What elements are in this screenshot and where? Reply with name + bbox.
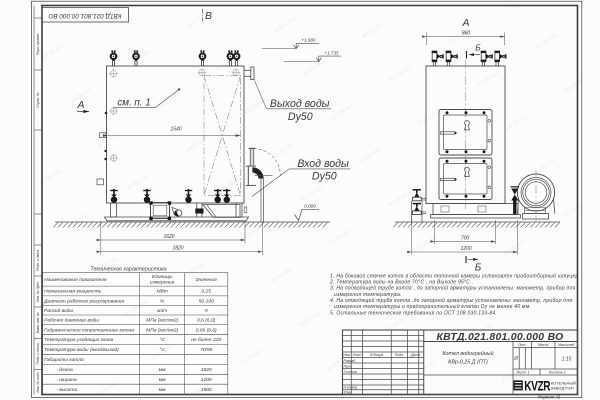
svg-text:1:15: 1:15 xyxy=(562,357,572,363)
svg-text:700: 700 xyxy=(461,236,470,242)
svg-text:Листов 2: Листов 2 xyxy=(548,371,567,375)
svg-text:4. На отводящей трубе котла ,: 4. На отводящей трубе котла ,до запорной… xyxy=(330,297,572,304)
svg-text:5. Остальные технические треб: 5. Остальные технические требования по О… xyxy=(330,310,497,316)
svg-text:Перв. примен.: Перв. примен. xyxy=(36,33,40,56)
svg-text:Значение: Значение xyxy=(195,277,217,283)
svg-text:Вход воды: Вход воды xyxy=(297,158,349,170)
svg-text:Пров.: Пров. xyxy=(344,364,353,368)
svg-text:см. п. 1: см. п. 1 xyxy=(117,97,150,108)
svg-text:А: А xyxy=(461,17,469,29)
svg-text:Выход воды: Выход воды xyxy=(270,98,330,110)
svg-text:измерения температуры и предох: измерения температуры и предохранительны… xyxy=(334,303,531,310)
svg-text:Расход воды: Расход воды xyxy=(44,308,73,314)
svg-text:9: 9 xyxy=(205,308,208,314)
svg-text:Гидравлическое сопротивление к: Гидравлическое сопротивление котла xyxy=(44,327,134,333)
svg-text:Б: Б xyxy=(475,43,481,53)
svg-text:не более 220: не более 220 xyxy=(191,337,221,343)
svg-text:Формат А3: Формат А3 xyxy=(538,394,561,399)
svg-text:Рабочее давление воды: Рабочее давление воды xyxy=(44,317,99,323)
svg-text:ЗАВОД РЭП: ЗАВОД РЭП xyxy=(551,386,574,391)
svg-text:1620: 1620 xyxy=(163,234,174,240)
svg-text:- высота: - высота xyxy=(56,388,77,393)
svg-text:МПа (кгс/см2): МПа (кгс/см2) xyxy=(146,317,178,323)
svg-text:Температура воды (вход/выход): Температура воды (вход/выход) xyxy=(44,347,119,353)
svg-text:0,25: 0,25 xyxy=(201,289,211,295)
svg-text:мм: мм xyxy=(159,388,166,393)
svg-text:А: А xyxy=(76,99,84,111)
svg-text:Dy50: Dy50 xyxy=(288,111,313,123)
svg-text:В: В xyxy=(205,10,212,22)
svg-text:- длина: - длина xyxy=(56,367,73,373)
svg-text:Габариты котла: Габариты котла xyxy=(44,357,84,363)
svg-text:Взам. инв. №: Взам. инв. № xyxy=(36,312,40,333)
svg-text:860: 860 xyxy=(462,31,471,37)
svg-text:Подп.: Подп. xyxy=(395,353,404,357)
svg-text:1540: 1540 xyxy=(170,127,181,133)
svg-text:КВТД.021.801.00.000 ВО: КВТД.021.801.00.000 ВО xyxy=(49,12,122,19)
svg-text:Подп. и дата: Подп. и дата xyxy=(36,250,40,271)
svg-text:Н.контр.: Н.контр. xyxy=(344,386,359,390)
svg-text:КВТД.021.801.00.000 ВО: КВТД.021.801.00.000 ВО xyxy=(436,332,563,343)
svg-text:°С: °С xyxy=(159,347,165,353)
svg-text:50-100: 50-100 xyxy=(199,298,215,304)
svg-text:Масса: Масса xyxy=(538,343,548,347)
svg-text:Номинальная мощность: Номинальная мощность xyxy=(44,289,102,295)
svg-text:°С: °С xyxy=(159,337,165,343)
svg-text:измерения: измерения xyxy=(150,281,175,286)
svg-text:КОТЕЛЬНЫЙ: КОТЕЛЬНЫЙ xyxy=(551,380,576,385)
svg-text:м3/ч: м3/ч xyxy=(157,308,167,314)
svg-text:Изм.: Изм. xyxy=(343,353,350,357)
svg-text:+1.900: +1.900 xyxy=(301,38,316,43)
svg-text:Инв. № подл.: Инв. № подл. xyxy=(36,371,40,392)
svg-text:Дата: Дата xyxy=(410,353,420,357)
svg-text:0,06 (0,6): 0,06 (0,6) xyxy=(196,327,217,333)
svg-text:Лист: Лист xyxy=(351,353,361,357)
svg-text:KVZR: KVZR xyxy=(524,378,551,394)
svg-text:1. На боковой стенке котла в: 1. На боковой стенке котла в области топ… xyxy=(330,272,578,279)
svg-text:Dy50: Dy50 xyxy=(312,170,337,182)
svg-text:1200: 1200 xyxy=(460,246,471,252)
svg-text:Наименование показателя: Наименование показателя xyxy=(44,277,107,283)
svg-text:Т.контр.: Т.контр. xyxy=(344,370,358,374)
svg-text:Единицы: Единицы xyxy=(152,274,173,280)
svg-text:Температура уходящих газов: Температура уходящих газов xyxy=(44,337,113,343)
svg-text:мм: мм xyxy=(159,368,166,373)
svg-text:Техническая характеристика: Техническая характеристика xyxy=(90,266,166,272)
svg-text:мм: мм xyxy=(159,378,166,383)
svg-text:1200: 1200 xyxy=(201,377,212,383)
svg-text:%: % xyxy=(160,298,165,304)
svg-text:Утв.: Утв. xyxy=(344,390,352,394)
svg-text:Лит.: Лит. xyxy=(517,343,526,347)
svg-text:Б: Б xyxy=(475,263,482,274)
svg-text:МВт: МВт xyxy=(156,289,167,295)
svg-text:Разраб.: Разраб. xyxy=(344,359,357,363)
svg-text:измерения температуры.: измерения температуры. xyxy=(334,292,402,298)
svg-text:КВр-0,25 Д (ПТ): КВр-0,25 Д (ПТ) xyxy=(448,360,488,366)
svg-text:0.000: 0.000 xyxy=(304,204,316,209)
svg-text:1900: 1900 xyxy=(201,387,212,393)
svg-text:Справ. №: Справ. № xyxy=(36,92,40,108)
svg-text:70/95: 70/95 xyxy=(200,347,213,353)
svg-text:Котел водогрейный: Котел водогрейный xyxy=(442,350,493,357)
svg-text:1820: 1820 xyxy=(172,246,183,252)
svg-text:Диапазон рабочего регулировани: Диапазон рабочего регулирования xyxy=(43,298,124,304)
svg-text:2. Температура воды на Входе: 2. Температура воды на Входе 70°С , на В… xyxy=(329,280,473,286)
svg-text:3. На подводящей трубе котла: 3. На подводящей трубе котла , до запорн… xyxy=(330,285,576,292)
svg-text:Подп. и дата: Подп. и дата xyxy=(36,343,40,364)
svg-text:МПа (кгс/см2): МПа (кгс/см2) xyxy=(146,327,178,333)
svg-text:Лист 1: Лист 1 xyxy=(516,371,530,375)
svg-text:1820: 1820 xyxy=(201,367,212,373)
svg-text:N докум.: N докум. xyxy=(370,353,384,357)
svg-text:Инв. № дубл.: Инв. № дубл. xyxy=(36,281,40,302)
svg-text:Масштаб: Масштаб xyxy=(558,343,575,347)
svg-text:- ширина: - ширина xyxy=(56,378,77,383)
svg-text:+1.735: +1.735 xyxy=(324,50,339,55)
svg-text:0,6 (6,0): 0,6 (6,0) xyxy=(197,317,216,323)
svg-text:И: И xyxy=(514,356,518,362)
